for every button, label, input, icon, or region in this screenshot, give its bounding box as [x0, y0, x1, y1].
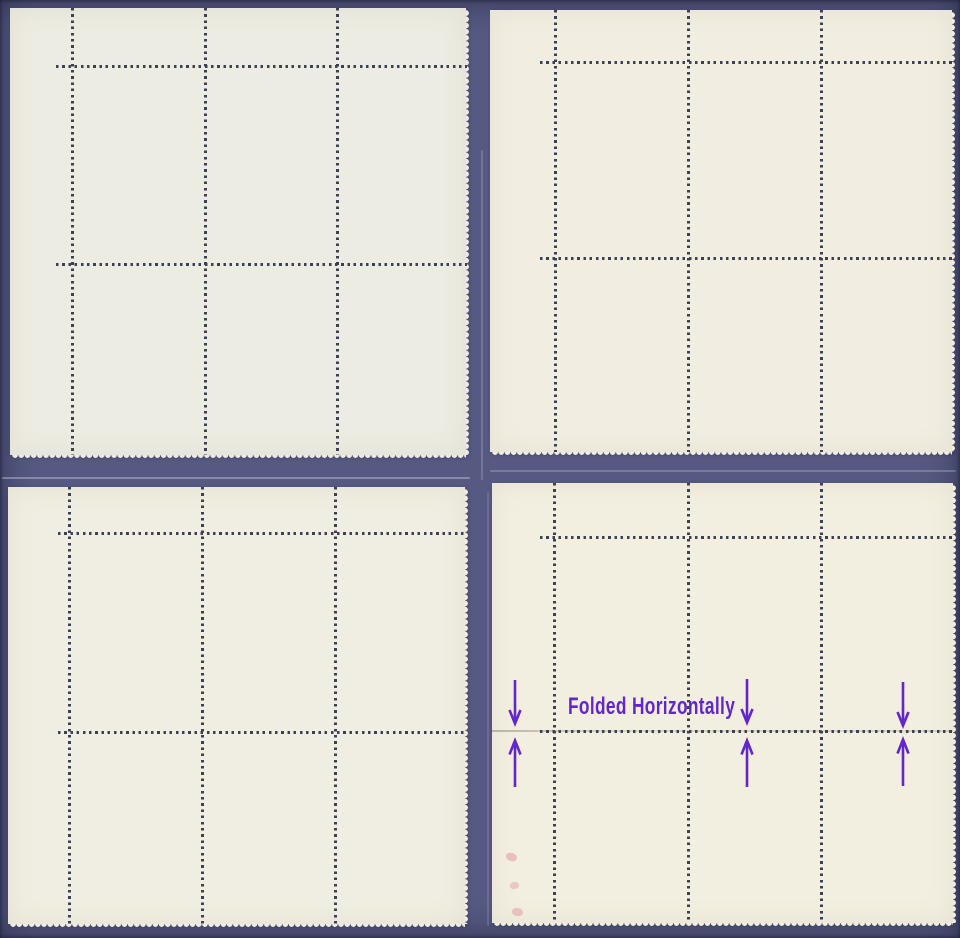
fold-arrow-down-icon	[895, 681, 911, 728]
mount-strip-highlight	[2, 477, 470, 479]
sheet-paper	[8, 487, 465, 924]
perforation-line-vertical	[204, 8, 207, 455]
perforation-line-vertical	[687, 10, 690, 452]
perforation-line-vertical	[68, 487, 71, 924]
fold-arrow-up-icon	[507, 735, 523, 788]
perforation-line-vertical	[820, 10, 823, 452]
mount-strip-highlight	[487, 492, 489, 926]
stamp-block-bottom-left	[8, 487, 470, 929]
stockbook-page: Folded Horizontally	[0, 0, 960, 938]
fold-arrow-up-icon	[895, 734, 911, 787]
perforated-edge-right	[952, 12, 957, 452]
fold-annotation-label: Folded Horizontally	[568, 693, 735, 721]
perforation-line-horizontal	[540, 536, 954, 539]
perforation-line-horizontal	[58, 731, 466, 734]
perforated-edge-bottom	[10, 924, 465, 929]
perforation-line-horizontal	[56, 65, 467, 68]
perforation-line-horizontal	[58, 532, 466, 535]
fold-arrow-down-icon	[507, 679, 523, 726]
fold-arrow-down-icon	[739, 678, 755, 725]
perforated-edge-bottom	[492, 452, 952, 457]
mount-strip-highlight	[481, 150, 483, 480]
perforation-line-vertical	[336, 8, 339, 455]
perforation-line-vertical	[554, 10, 557, 452]
sheet-paper	[10, 8, 466, 455]
perforation-line-horizontal	[56, 263, 467, 266]
fold-arrow-up-icon	[739, 735, 755, 788]
mount-strip-highlight	[490, 470, 956, 472]
perforation-line-vertical	[71, 8, 74, 455]
stamp-block-top-right	[490, 10, 957, 457]
perforation-line-vertical	[201, 487, 204, 924]
sheet-paper	[490, 10, 952, 452]
perforation-line-horizontal	[540, 730, 954, 733]
perforation-line-vertical	[334, 487, 337, 924]
stamp-block-top-left	[10, 8, 471, 460]
perforation-line-vertical	[820, 483, 823, 923]
perforation-line-horizontal	[540, 257, 953, 260]
perforated-edge-bottom	[12, 455, 466, 460]
perforated-edge-bottom	[494, 923, 953, 928]
perforation-line-horizontal	[540, 61, 953, 64]
perforation-line-vertical	[553, 483, 556, 923]
perforated-edge-right	[466, 10, 471, 455]
perforated-edge-right	[953, 485, 958, 923]
perforated-edge-right	[465, 489, 470, 924]
